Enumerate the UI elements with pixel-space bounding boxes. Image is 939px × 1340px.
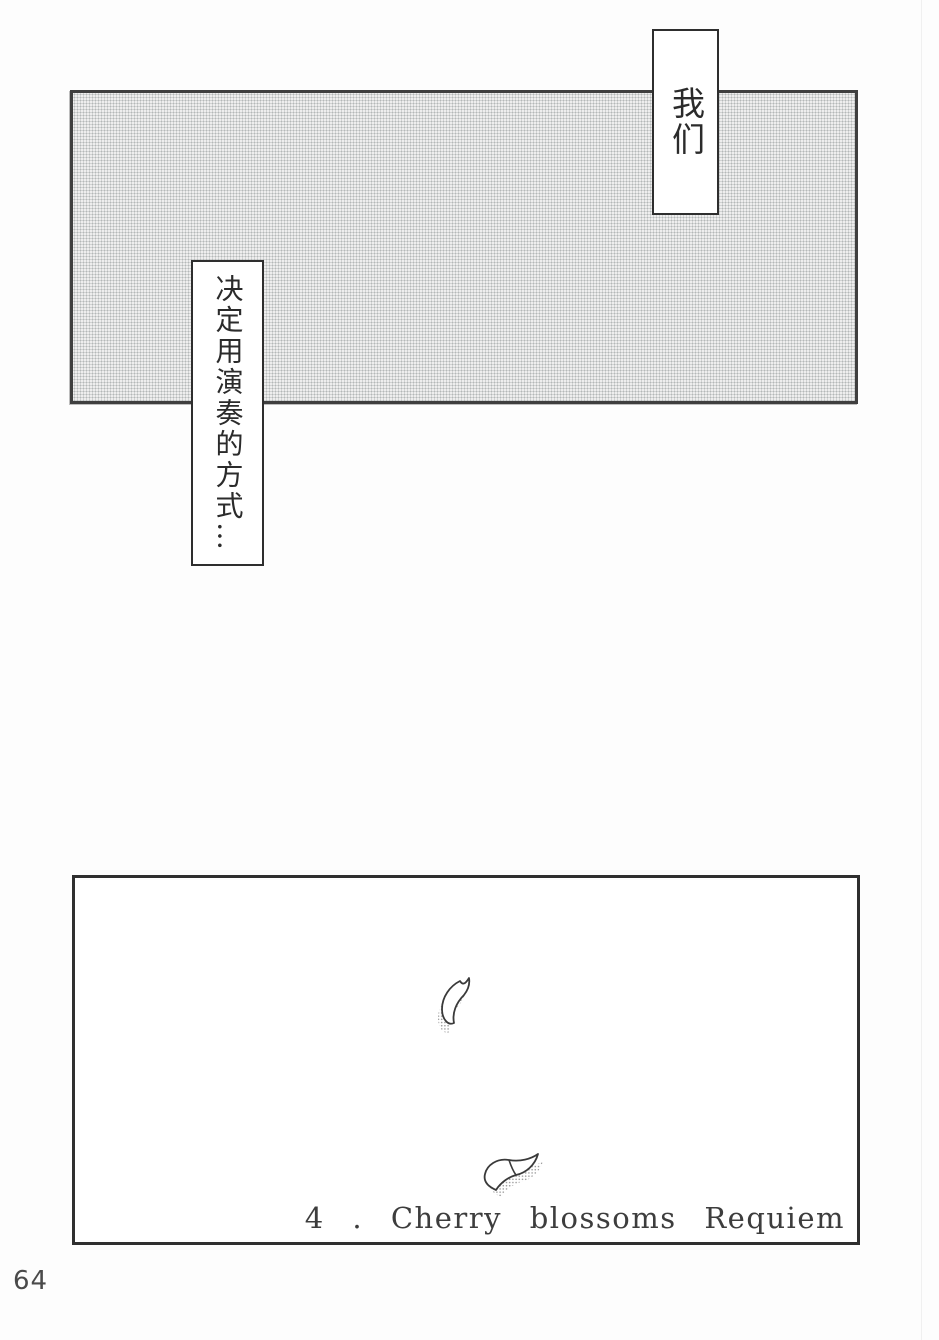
title-panel: 4 . Cherry blossoms Requiem — [72, 875, 860, 1245]
speech-text: 决定用演奏的方式… — [208, 274, 248, 553]
cherry-petal-icon — [478, 1152, 544, 1202]
manga-page: 我们 决定用演奏的方式… 4 . Cherry blos — [0, 0, 939, 1340]
chapter-title: 4 . Cherry blossoms Requiem — [305, 1201, 845, 1235]
speech-bubble-left: 决定用演奏的方式… — [191, 260, 264, 566]
speech-bubble-top-right: 我们 — [652, 29, 719, 215]
speech-text: 我们 — [662, 86, 710, 158]
scan-edge-line — [921, 0, 922, 1340]
page-number: 64 — [13, 1266, 48, 1296]
screentone-panel — [70, 90, 858, 404]
cherry-petal-icon — [435, 974, 481, 1036]
